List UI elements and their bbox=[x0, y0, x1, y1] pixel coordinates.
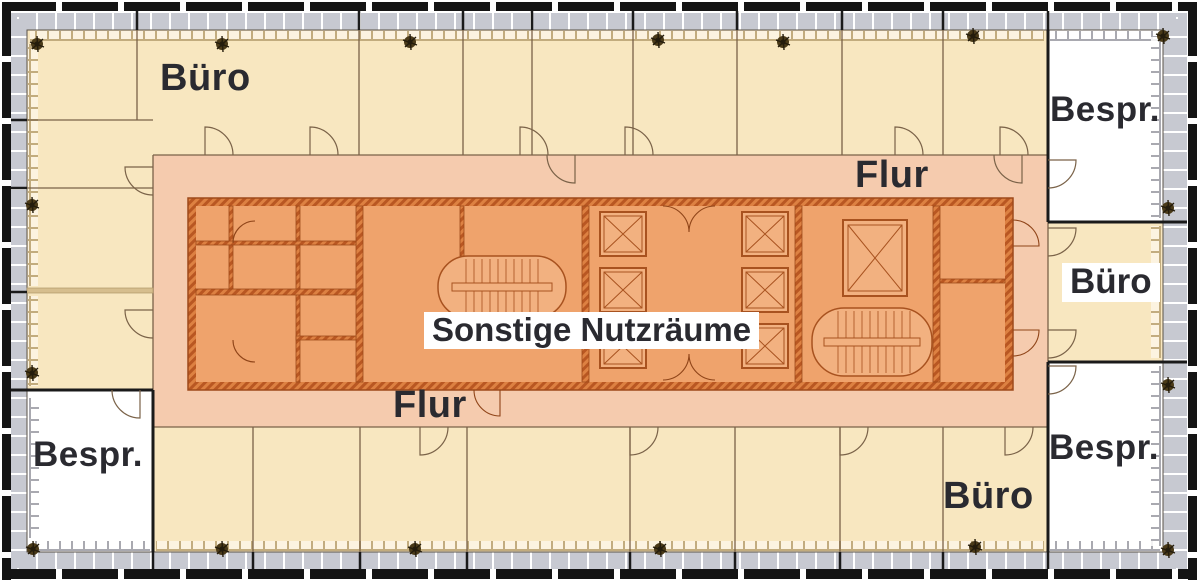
zone-label-core: Sonstige Nutzräume bbox=[424, 312, 759, 349]
zone-label-office-top-left: Büro bbox=[160, 59, 251, 99]
floor-plan: Büro Bespr. Flur Büro Sonstige Nutzräume… bbox=[0, 0, 1200, 586]
building-core bbox=[188, 198, 1039, 416]
stair-icon bbox=[812, 308, 932, 376]
elevator-icon bbox=[843, 220, 907, 296]
stair-icon bbox=[438, 256, 566, 318]
zone-label-meeting-bottom-left: Bespr. bbox=[33, 437, 143, 474]
zone-label-office-bottom: Büro bbox=[943, 477, 1034, 517]
installation-wall bbox=[27, 288, 153, 293]
zone-label-meeting-top-right: Bespr. bbox=[1050, 92, 1160, 129]
zone-label-office-right: Büro bbox=[1062, 263, 1160, 302]
zone-label-corridor-top: Flur bbox=[855, 156, 929, 196]
zone-label-corridor-bottom: Flur bbox=[393, 386, 467, 426]
zone-label-meeting-bottom-right: Bespr. bbox=[1049, 430, 1159, 467]
